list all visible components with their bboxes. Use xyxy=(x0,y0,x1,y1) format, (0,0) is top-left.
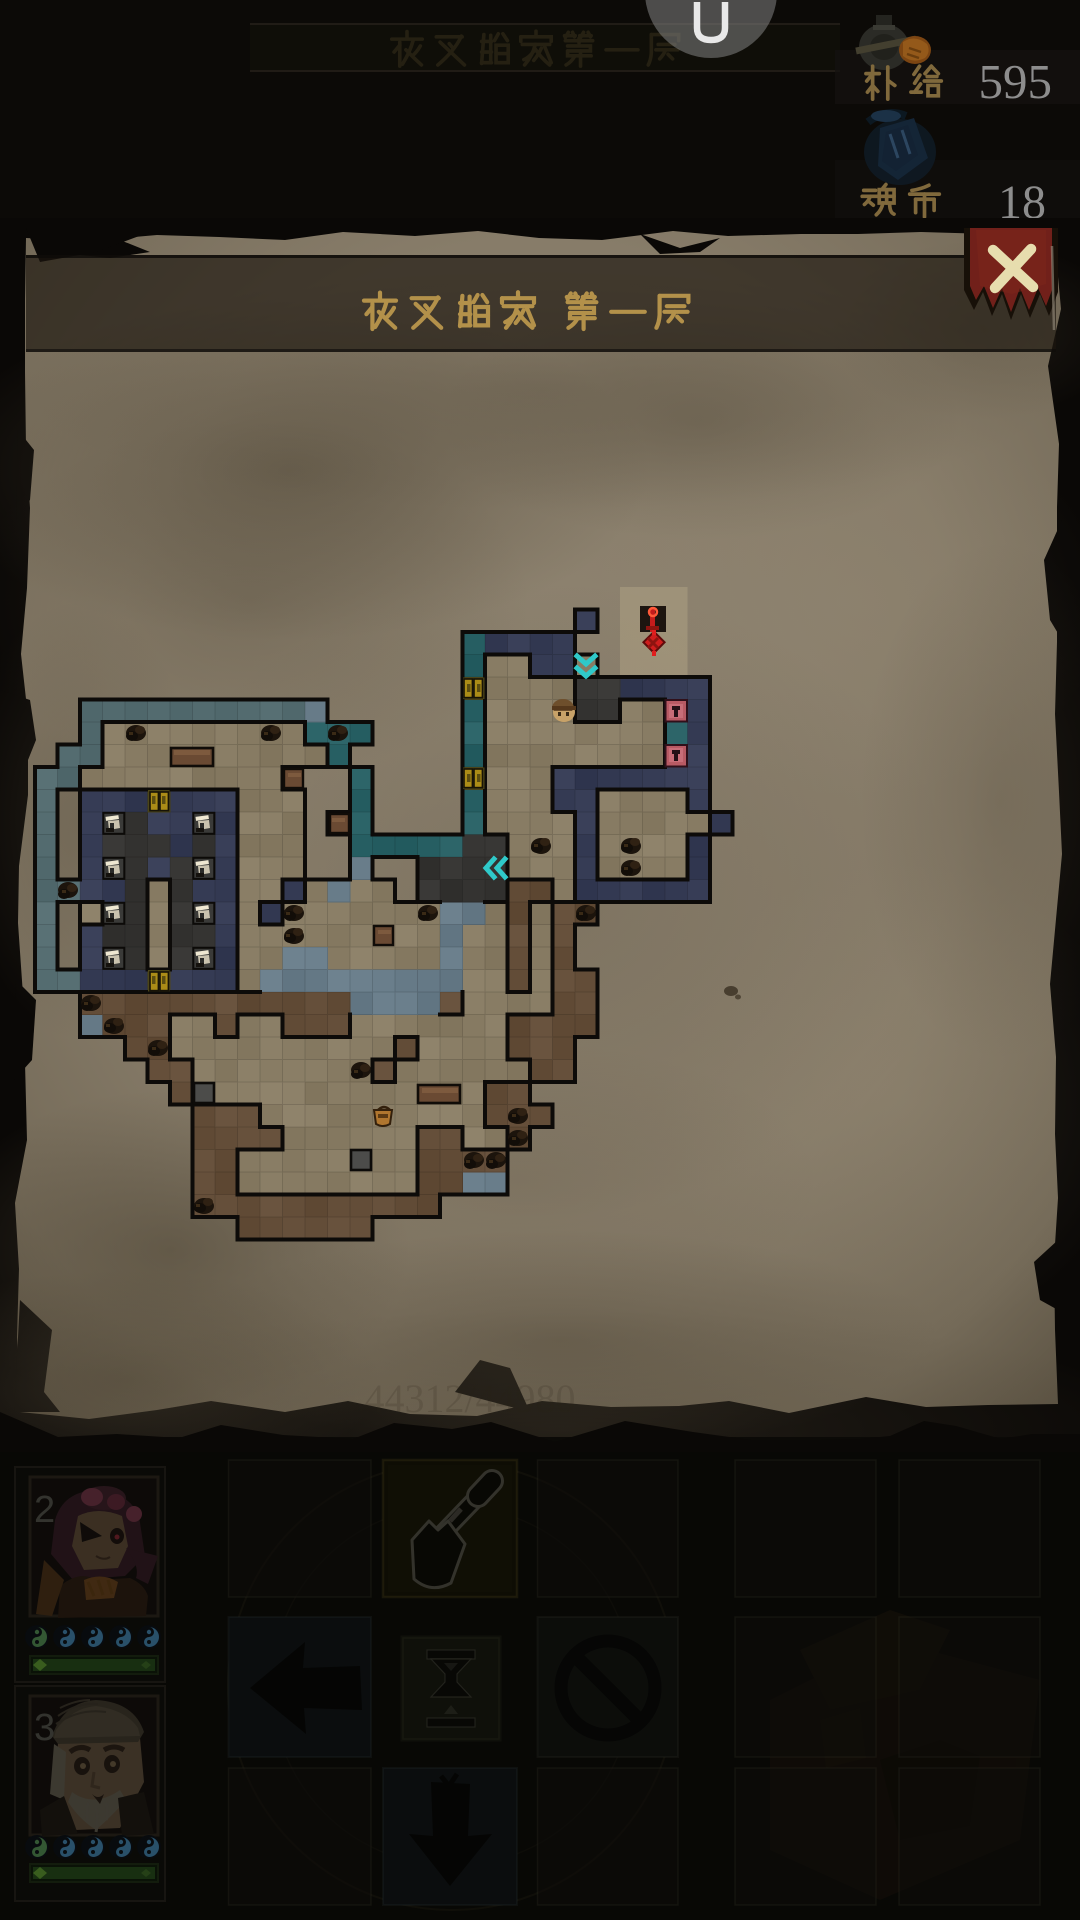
svg-text:44312/44980: 44312/44980 xyxy=(364,1376,575,1421)
svg-text:595: 595 xyxy=(979,54,1053,109)
